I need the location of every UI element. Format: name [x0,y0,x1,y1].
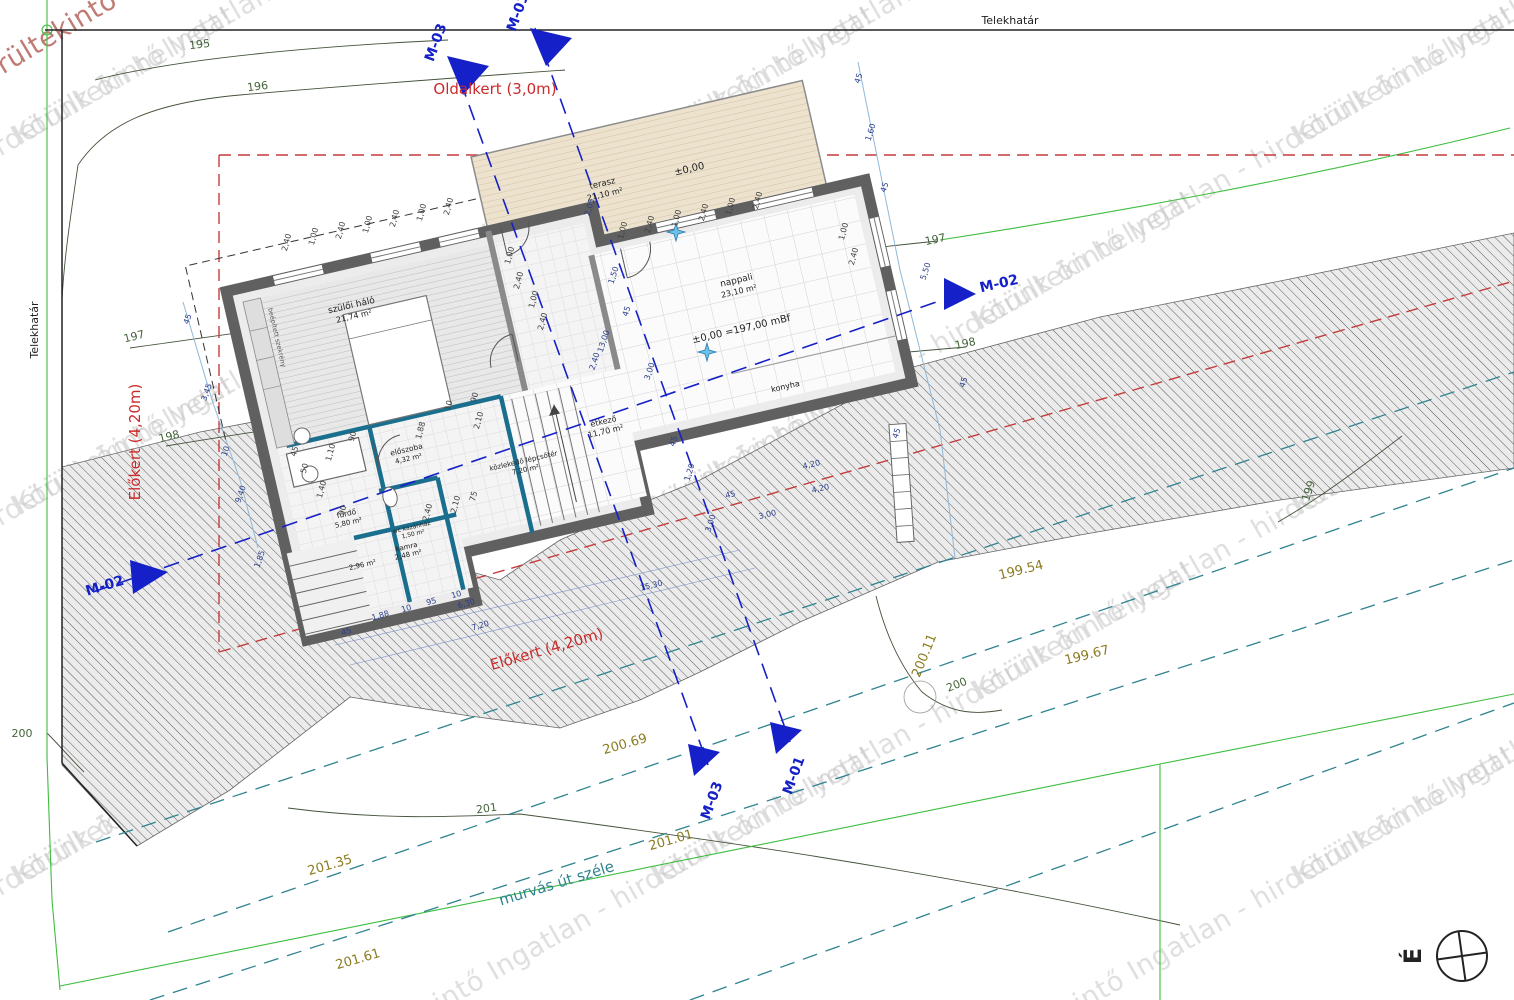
contour-label: 195 [188,37,210,52]
compass-cross-icon [1434,928,1490,984]
contour-label: 196 [246,79,268,94]
setback-side-label: Oldalkert (3,0m) [433,80,556,98]
washbasin [294,428,310,444]
contour-label: 197 [924,231,947,248]
dim-label: 2,40 [388,209,401,229]
north-compass: É [1398,928,1490,984]
contour-label: 201 [475,801,498,817]
site-plan-canvas: Körültekintő Ingatlan - hirdetünk ön hel… [0,0,1514,1000]
dim-label: 45 [182,313,194,326]
watermark-text: Körültekintő Ingatlan - hirdetünk ön hel… [1288,555,1514,891]
site-plan-drawing: Körültekintő Ingatlan - hirdetünk ön hel… [0,0,1514,1000]
m02-right-triangle [944,278,976,310]
dim-label: 1,60 [864,122,878,142]
m01-bottom-triangle [770,722,802,754]
dim-label: 45 [879,181,891,193]
m03-bottom-triangle [688,744,720,776]
boundary-label-top: Telekhatár [980,14,1039,27]
north-label: É [1398,948,1427,964]
dim-label: 1,00 [415,203,428,223]
setback-front-left-label: Előkert (4,20m) [126,384,144,501]
elev-label: 201.61 [334,946,382,973]
m01-top-triangle [530,28,572,66]
watermark-text: Körültekintő Ingatlan - hirdetünk ön hel… [968,740,1514,1000]
dim-label: 1,00 [361,215,374,235]
elev-label: 201.35 [306,852,354,879]
dim-label: 2,40 [280,233,293,253]
dim-label: 45 [853,72,865,84]
section-label-m01-top: M-01 [504,0,532,34]
boundary-label-left: Telekhatár [28,301,41,360]
section-label-m03-top: M-03 [422,21,450,63]
contour-label: 200 [12,727,33,740]
dim-label: 1,00 [307,227,320,247]
dim-label: 5,50 [919,261,933,281]
elev-label: 200.11 [909,632,940,680]
dim-label: 2,40 [442,197,455,217]
elev-label: 200.69 [601,731,649,758]
elev-label: 199.54 [997,558,1045,584]
contour-label: 197 [122,328,146,346]
dim-label: 2,40 [334,221,347,241]
